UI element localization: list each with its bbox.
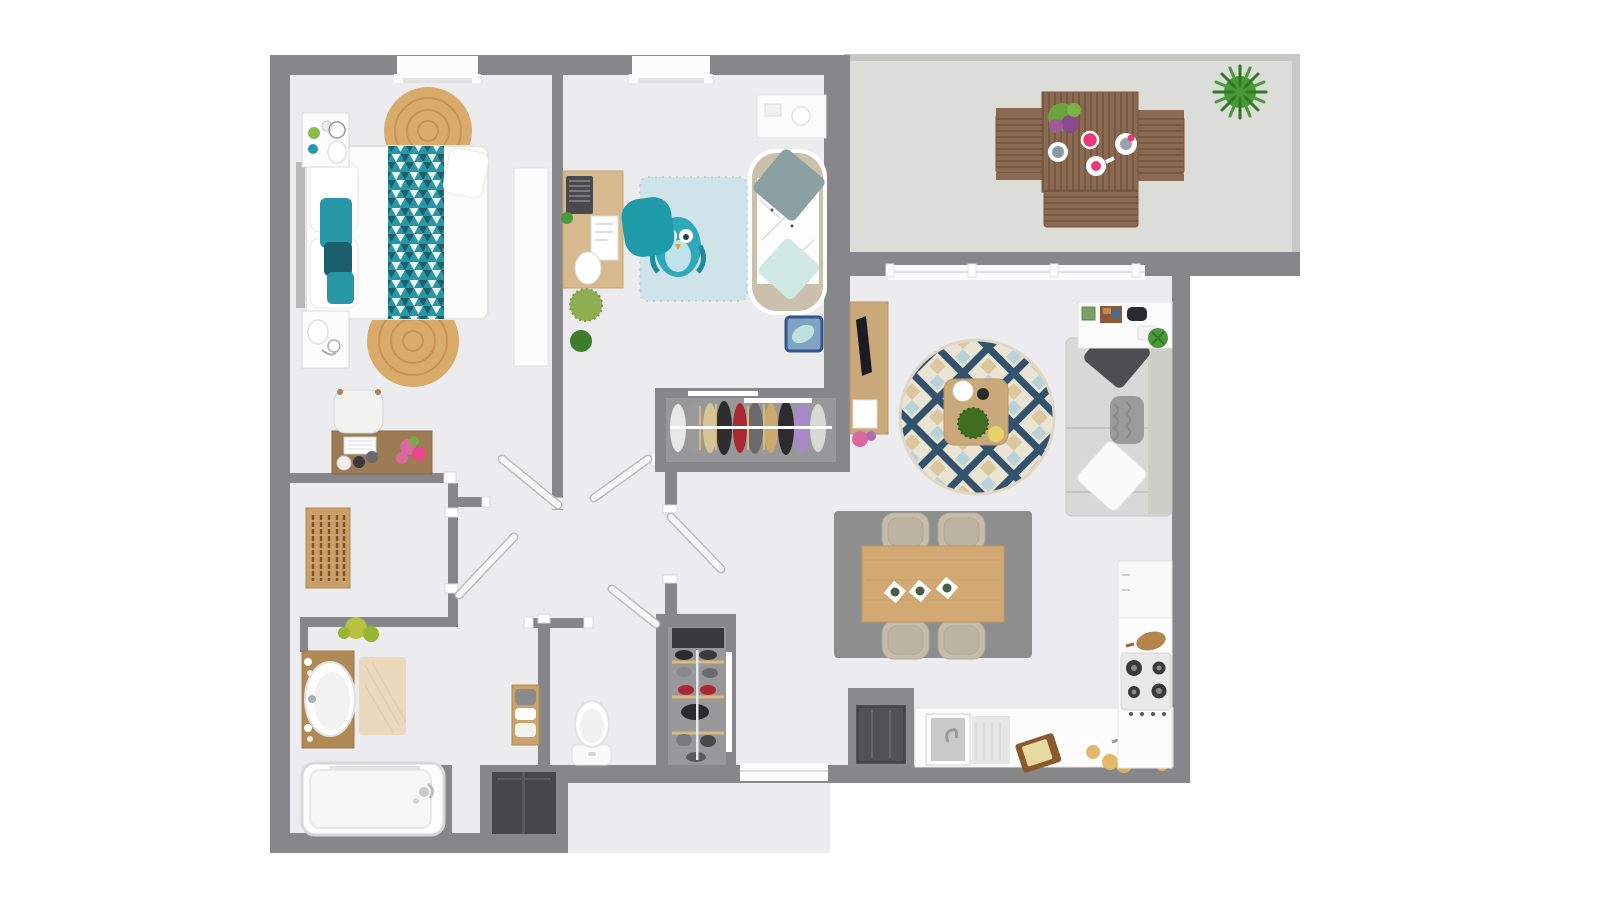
wall-bedroom-divider [552, 75, 563, 510]
teal-runner [388, 146, 444, 319]
entry-door [848, 688, 914, 767]
tv-stand [850, 302, 888, 447]
kids-desk [561, 171, 623, 288]
plant-small [570, 330, 592, 352]
gray-towel [515, 689, 536, 705]
bedroom1-desk [332, 431, 432, 474]
drying-rack [306, 508, 350, 588]
terrace-railing-right [1292, 54, 1300, 254]
floor-plan-stage [0, 0, 1600, 900]
closet-sliding-door [726, 652, 732, 752]
fern-plant [1214, 66, 1266, 118]
bed-headboard [296, 162, 306, 308]
technical-niche [492, 772, 556, 834]
faucet [308, 695, 316, 703]
wall-hall-east-lower [665, 582, 677, 618]
closet-top-shelf [672, 628, 724, 648]
nightstand-top [302, 113, 349, 167]
sliding-door-2 [744, 398, 812, 403]
flowers [852, 431, 868, 447]
floor-plan-render [0, 0, 1600, 900]
towel-shelf [512, 685, 539, 745]
pillow-teal-dark [324, 242, 352, 276]
table-lamp [328, 141, 346, 163]
papers [591, 216, 618, 260]
sliding-door-1 [688, 391, 758, 396]
pillow-teal [320, 198, 352, 248]
daybed [748, 147, 827, 315]
double-bed [306, 146, 490, 319]
dining-table [862, 546, 1004, 622]
wc [572, 701, 611, 765]
blue-basket [786, 317, 822, 351]
white-towel [515, 708, 536, 720]
wall-bathroom-north [300, 617, 457, 627]
sofa-back [1148, 340, 1172, 514]
bathtub [302, 763, 444, 835]
outdoor-armchair-left [996, 108, 1042, 180]
kids-side-table [757, 95, 826, 138]
wall-outer-top [270, 55, 845, 75]
wall-vestibule [448, 483, 458, 627]
window-bedroom1 [394, 56, 481, 83]
window-bedroom2 [629, 56, 713, 83]
sofa [1066, 320, 1172, 516]
wall-outer-right [1172, 252, 1190, 783]
terrace-railing-top [844, 54, 1300, 61]
sliding-glass-door-terrace [886, 264, 1145, 280]
wall-wc-north [526, 618, 592, 628]
table-lamp [308, 320, 328, 344]
closet-rail [670, 426, 832, 429]
wall-wc-west [538, 628, 550, 767]
wall-outer-bottom [538, 765, 1190, 783]
window-entry [740, 763, 828, 781]
outdoor-bench [1044, 190, 1138, 227]
lamp [792, 107, 810, 125]
shoe-closet [656, 614, 736, 767]
kids-wardrobe [655, 388, 847, 472]
bedroom1-chair [334, 389, 383, 433]
coffee-table [944, 379, 1008, 445]
small-plant [561, 212, 573, 224]
wall-bathroom-return [300, 617, 308, 652]
wall-outer-left [270, 55, 290, 853]
white-wardrobe [514, 168, 548, 366]
plant-pompom [570, 289, 602, 321]
gas-hob [1121, 653, 1171, 716]
toilet [572, 701, 611, 765]
pillow-teal-2 [327, 272, 354, 304]
yellow-plate [988, 426, 1004, 442]
outdoor-armchair-right [1138, 110, 1184, 181]
game-controller [1127, 307, 1147, 321]
tub-faucet [419, 787, 429, 797]
vanity [302, 651, 355, 748]
nightstand-bottom [302, 311, 349, 368]
console-shelf [1078, 302, 1172, 348]
kitchen-sink [926, 714, 1010, 765]
mini-plant-box [1082, 307, 1095, 320]
pink-plate [1082, 132, 1098, 148]
desk-lamp [575, 252, 601, 284]
